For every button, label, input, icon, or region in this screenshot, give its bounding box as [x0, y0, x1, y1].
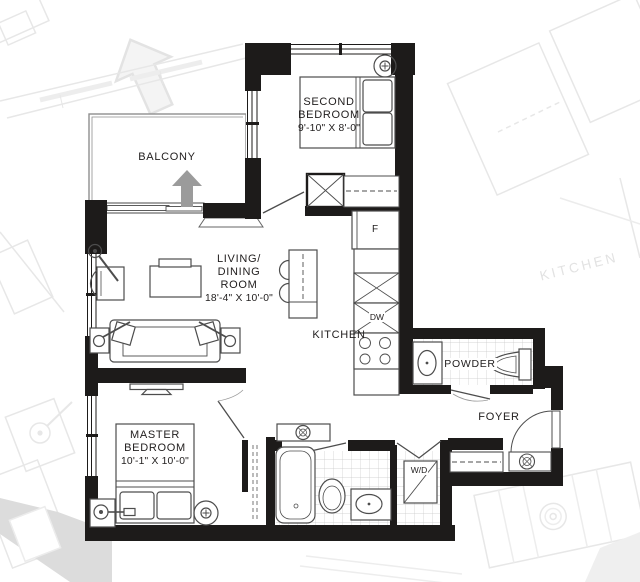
floor-plan-drawing	[0, 0, 640, 582]
bathroom-toilet	[319, 479, 345, 513]
second-bedroom-door	[263, 192, 304, 213]
hall-closet-rod	[253, 445, 257, 522]
bathtub	[276, 447, 315, 523]
kitchen-label: KITCHEN	[289, 329, 389, 342]
room-name: LIVING/	[186, 253, 292, 266]
room-name: MASTER	[104, 429, 206, 442]
foyer-fixtures	[450, 452, 551, 472]
living-room-window	[86, 254, 98, 336]
balcony-label: BALCONY	[117, 151, 217, 164]
ceiling-light-icon	[194, 501, 218, 525]
fridge-label: F	[353, 224, 397, 235]
wall-tv	[130, 384, 183, 395]
entry-cabinet	[509, 452, 551, 471]
room-name: KITCHEN	[289, 329, 389, 342]
living-dining-label: LIVING/ DINING ROOM 18'-4" x 10'-0"	[186, 253, 292, 305]
bathroom-sink	[351, 489, 391, 520]
room-dimensions: 10'-1" x 10'-0"	[104, 455, 206, 468]
dishwasher-label: DW	[355, 312, 399, 322]
room-dimensions: 18'-4" x 10'-0"	[186, 292, 292, 305]
second-bedroom-window	[291, 43, 391, 55]
kitchen-sink	[354, 273, 399, 303]
door-threshold	[199, 218, 263, 227]
hall-cabinet	[277, 424, 330, 441]
master-bedroom-label: MASTER BEDROOM 10'-1" x 10'-0"	[104, 429, 206, 468]
room-name: BALCONY	[117, 151, 217, 164]
washer-dryer-label: W/D	[400, 465, 438, 475]
room-name: POWDER	[443, 358, 496, 370]
second-bedroom-label: SECOND BEDROOM 9'-10" x 8'-0"	[284, 96, 374, 135]
kitchen-fixtures	[280, 211, 400, 395]
room-name: DINING	[186, 266, 292, 279]
room-name: BEDROOM	[104, 442, 206, 455]
room-name: SECOND	[284, 96, 374, 109]
bedroom-balcony-window	[246, 91, 259, 158]
master-bedroom-door	[218, 401, 244, 438]
sofa	[110, 320, 220, 362]
dishwasher-label-text: DW	[369, 312, 385, 322]
room-dimensions: 9'-10" x 8'-0"	[284, 122, 374, 135]
closet-second-bedroom	[307, 174, 399, 207]
master-bedroom-window	[86, 396, 98, 476]
foyer-closet	[450, 452, 503, 472]
floor-plan: BALCONY SECOND BEDROOM 9'-10" x 8'-0" LI…	[0, 0, 640, 582]
room-name: BEDROOM	[284, 109, 374, 122]
room-name: FOYER	[457, 411, 541, 424]
powder-room-label: POWDER	[429, 358, 511, 371]
washer-dryer-label-text: W/D	[410, 465, 429, 475]
powder-room-door	[451, 390, 490, 399]
room-name: ROOM	[186, 279, 292, 292]
foyer-label: FOYER	[457, 411, 541, 424]
